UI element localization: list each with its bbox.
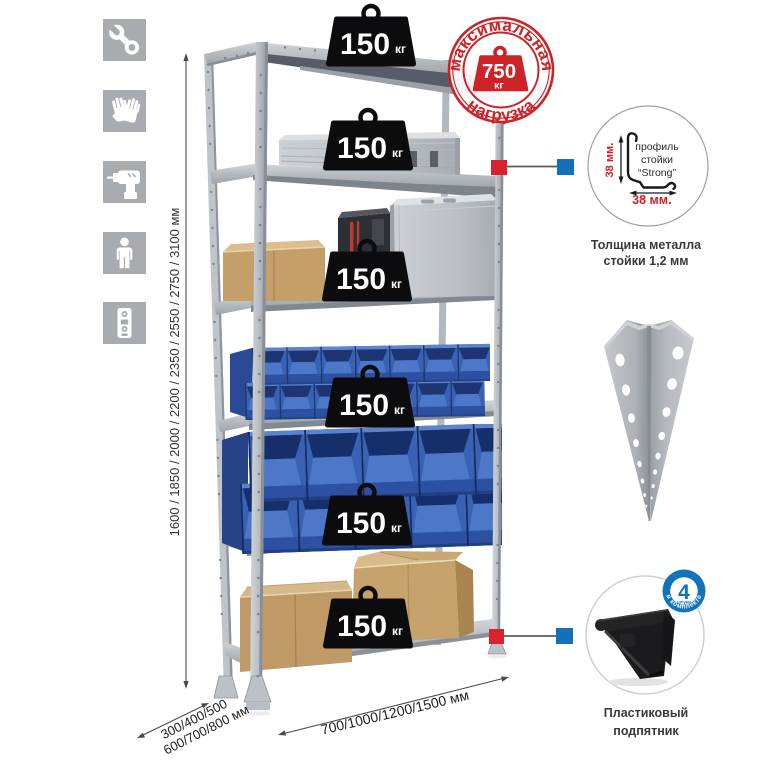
- svg-text:Толщина металла: Толщина металла: [591, 238, 702, 252]
- svg-text:38 мм.: 38 мм.: [632, 192, 672, 207]
- svg-text:Пластиковый: Пластиковый: [604, 706, 688, 720]
- svg-text:подпятник: подпятник: [613, 724, 679, 738]
- svg-text:стойки 1,2 мм: стойки 1,2 мм: [604, 254, 689, 268]
- svg-text:1600 / 1850 / 2000 / 2200 / 23: 1600 / 1850 / 2000 / 2200 / 2350 / 2550 …: [167, 208, 182, 537]
- svg-text:38 мм.: 38 мм.: [602, 143, 616, 178]
- svg-text:“Strong”: “Strong”: [638, 167, 676, 179]
- svg-text:профиль: профиль: [635, 141, 679, 153]
- svg-text:кг: кг: [494, 80, 504, 92]
- svg-text:стойки: стойки: [641, 154, 673, 166]
